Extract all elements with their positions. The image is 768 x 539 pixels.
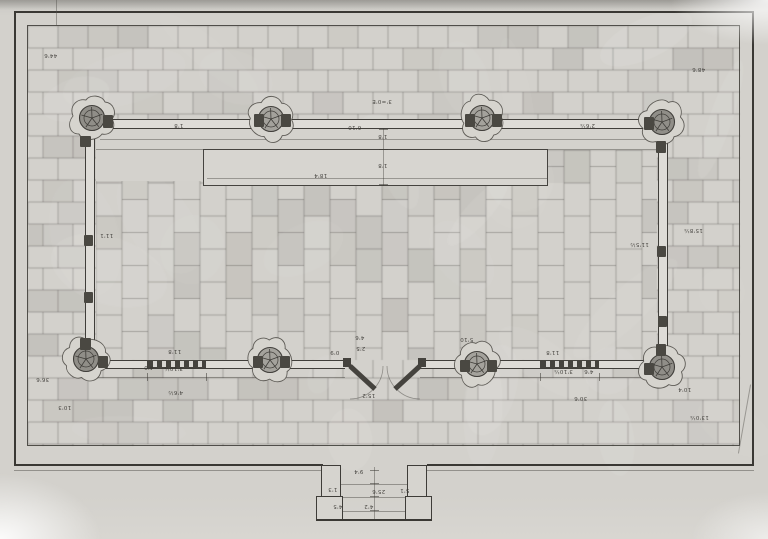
outer-border-bottom-left — [14, 464, 323, 466]
porch-dim-tick-2 — [370, 483, 379, 484]
outer-border-right — [752, 11, 754, 466]
capital-block — [492, 114, 502, 127]
dim-tick-e — [206, 373, 207, 381]
wall-joint — [80, 136, 91, 147]
capital-block — [281, 114, 291, 127]
dimension-label: 11'1 — [100, 232, 113, 238]
porch-foot-right — [405, 496, 432, 521]
wall-joint — [253, 356, 263, 368]
dimension-label: 4'0 — [144, 364, 153, 370]
dimension-label: 25'6 — [372, 488, 385, 494]
dimension-label: 0'9 — [330, 349, 339, 355]
outer-border-bottom-right-ghost — [427, 470, 754, 471]
porch-dim-tick-1 — [370, 470, 379, 471]
dimension-label: 11'5½ — [630, 241, 649, 247]
column-plan-icon — [238, 91, 304, 151]
dimension-label: 30'6 — [574, 395, 587, 401]
dimension-label: 4'6 — [355, 334, 364, 340]
balustrade-right — [540, 360, 599, 368]
dimension-label: 4'6 — [584, 368, 593, 374]
dimension-label: 13'0¼ — [690, 414, 709, 420]
dimension-label: 10'4 — [678, 386, 691, 392]
entrance-door-swings — [330, 352, 440, 408]
wall-joint — [644, 363, 654, 375]
column-plan-icon — [237, 332, 303, 392]
paper-crease-top-left — [56, 0, 57, 26]
wall-joint — [658, 316, 667, 327]
dimension-label: 48'6 — [692, 66, 705, 72]
dimension-label: 9'4 — [354, 468, 363, 474]
dim-tick-a — [379, 129, 388, 130]
dimension-label: 2'5 — [356, 345, 365, 351]
dim-tick-b — [379, 149, 388, 150]
dimension-line-bottom-left — [90, 377, 345, 378]
wall-joint — [656, 141, 666, 153]
dimension-label: 4'5 — [333, 503, 342, 509]
wall-joint — [98, 356, 108, 368]
porch-dim-tick-4 — [370, 510, 379, 511]
dimension-label: 11'8 — [168, 348, 181, 354]
wall-joint — [657, 246, 666, 257]
column — [444, 336, 510, 396]
column — [237, 332, 303, 392]
capital-block — [103, 115, 113, 128]
dim-tick-c — [379, 184, 388, 185]
dim-tick-d — [147, 373, 148, 381]
dimension-label: 1'8 — [378, 133, 387, 139]
column-plan-icon — [59, 90, 125, 150]
dimension-label: 3'10¼ — [554, 368, 573, 374]
dimension-label: 1'8 — [378, 162, 387, 168]
door-leaf-right — [395, 366, 420, 389]
wall-joint — [84, 235, 93, 246]
wall-joint — [656, 344, 666, 356]
dimension-label: 5'10 — [460, 336, 473, 342]
outer-border-bottom-left-ghost — [14, 470, 323, 471]
dimension-label: 1'3 — [328, 486, 337, 492]
dimension-label: 4'2 — [364, 503, 373, 509]
dimension-label: 11'8 — [546, 349, 559, 355]
dimension-label: 4'6½ — [168, 389, 183, 395]
column — [59, 90, 125, 150]
bottom-wall-left — [95, 360, 345, 369]
dimension-label: 6'10 — [348, 124, 361, 130]
dimension-label: 2'6¼ — [580, 122, 595, 128]
dimension-label: 44'6 — [44, 52, 57, 58]
scanned-plan-photo: 44'648'63'=0'E1'86'102'6¼1'81'818'411'11… — [0, 0, 768, 539]
capital-block — [644, 117, 654, 130]
dimension-line-top — [100, 139, 655, 140]
capital-block — [465, 114, 475, 127]
column — [449, 90, 515, 150]
wall-joint — [460, 360, 470, 372]
dimension-label: 3'10¼ — [164, 365, 183, 371]
dimension-label: 15'2 — [362, 392, 375, 398]
outer-border-left — [14, 11, 16, 466]
wall-joint — [280, 356, 290, 368]
capital-block — [254, 114, 264, 127]
top-strip-left-extension — [96, 150, 203, 181]
dimension-label: 15'8¼ — [684, 227, 703, 233]
door-leaf-left — [350, 366, 375, 389]
portico-band — [203, 149, 548, 186]
dimension-label: 5'1 — [400, 487, 409, 493]
outer-border-bottom-right — [427, 464, 754, 466]
column-plan-icon — [449, 90, 515, 150]
wall-joint — [487, 360, 497, 372]
dim-tick-f — [540, 373, 541, 381]
porch-dim-tick-3 — [370, 496, 379, 497]
column — [238, 91, 304, 151]
dimension-label: 1'8 — [174, 122, 183, 128]
door-hinge-left — [343, 358, 351, 367]
dim-tick-g — [599, 373, 600, 381]
outer-border-top — [14, 11, 754, 13]
dimension-label: 18'4 — [314, 172, 327, 178]
wall-joint — [84, 292, 93, 303]
dimension-line-band — [207, 178, 547, 179]
dimension-label: 36'6 — [36, 376, 49, 382]
dimension-label: 3'=0'E — [372, 98, 392, 104]
dimension-label: 10'3 — [58, 404, 71, 410]
column-plan-icon — [444, 336, 510, 396]
wall-joint — [80, 338, 91, 350]
